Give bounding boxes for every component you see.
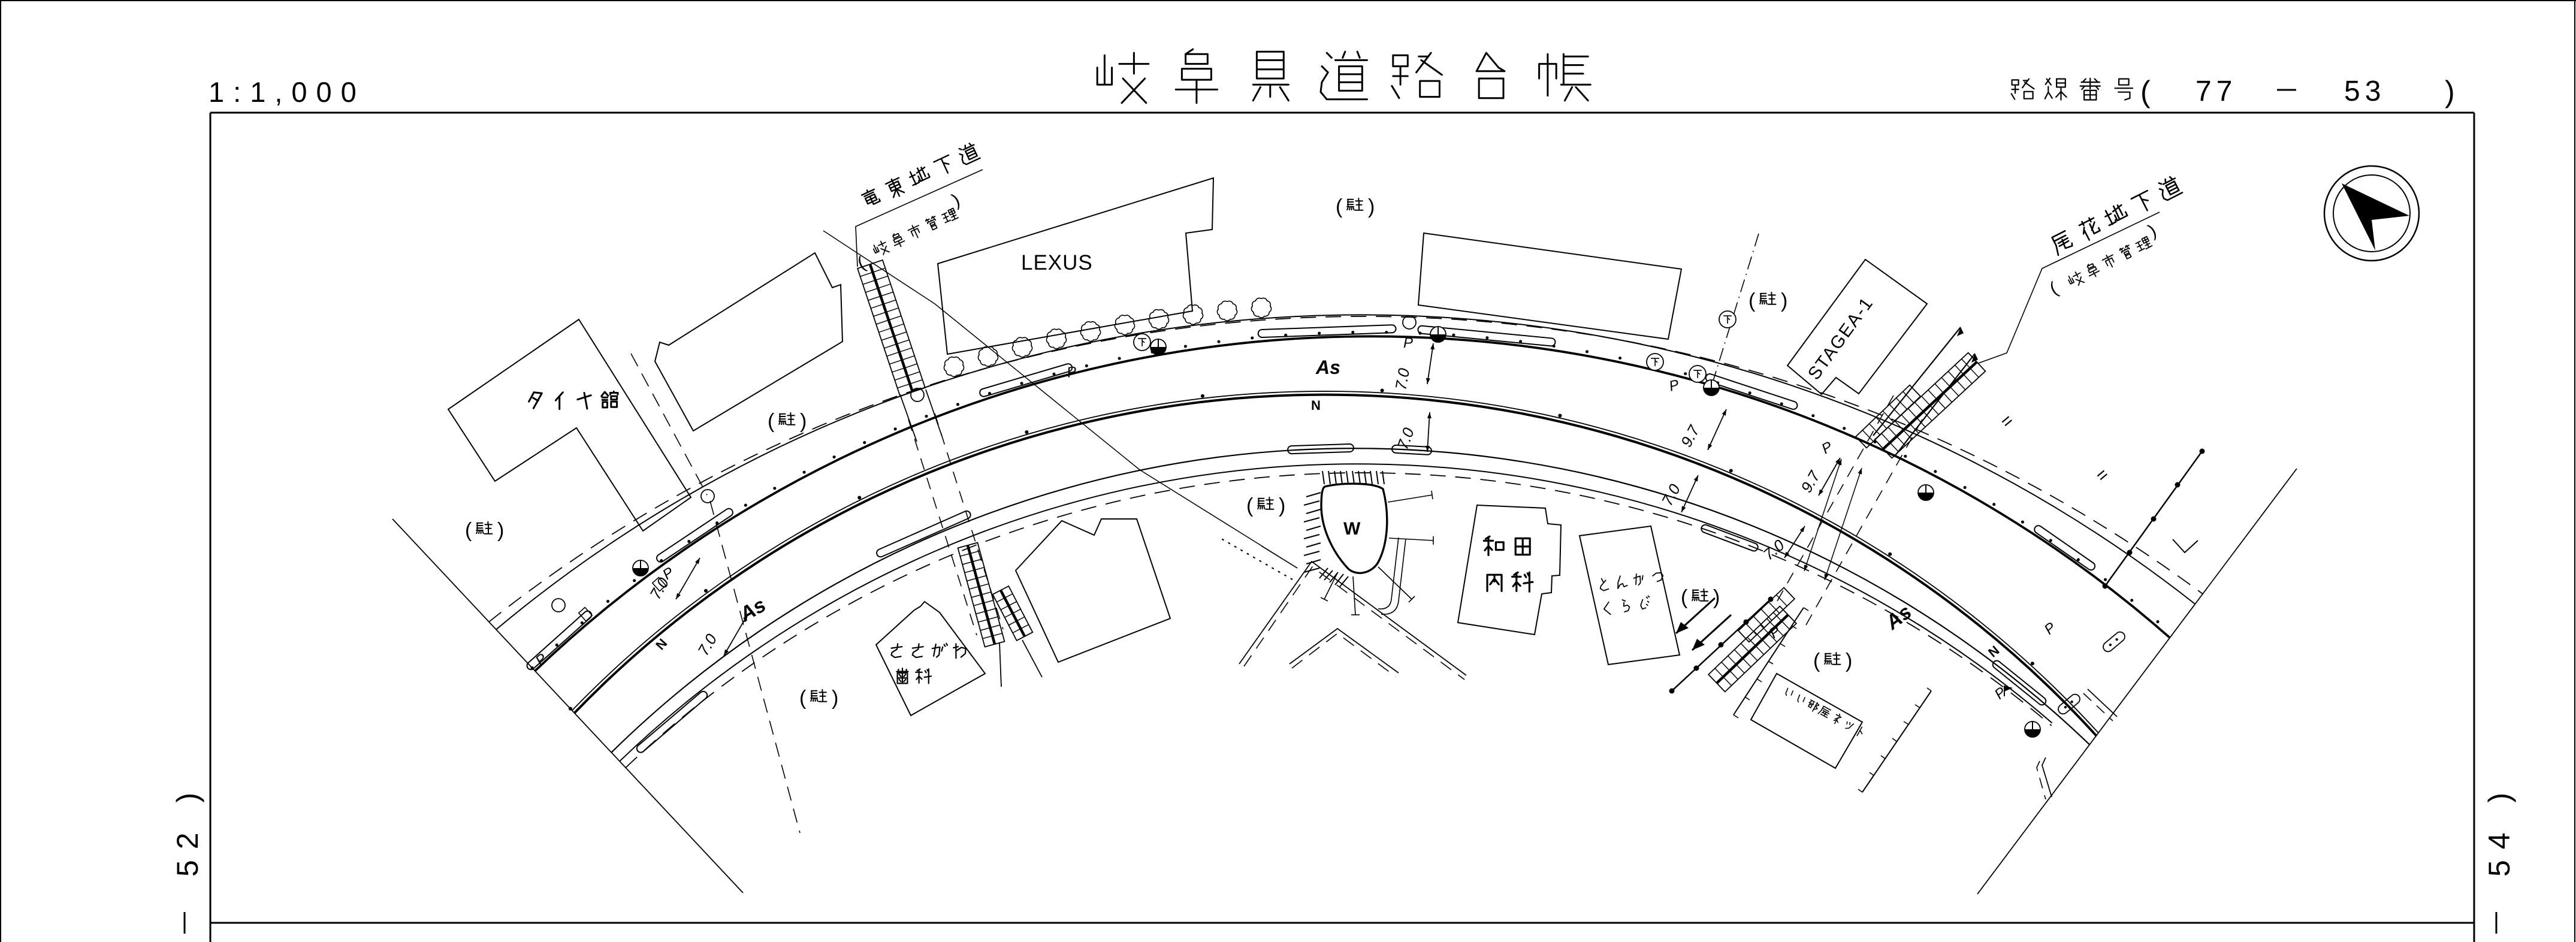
svg-text:7.0: 7.0 (1391, 367, 1413, 391)
svg-text:): ) (800, 410, 807, 433)
svg-text:): ) (1781, 289, 1787, 312)
svg-text:(: ( (465, 519, 472, 542)
svg-text:): ) (2445, 75, 2455, 108)
svg-text:1:1,000: 1:1,000 (209, 76, 366, 108)
svg-text:(: ( (1748, 289, 1756, 312)
svg-text:P: P (1403, 335, 1413, 351)
svg-text:): ) (832, 687, 838, 709)
svg-text:52 ): 52 ) (171, 782, 204, 877)
svg-text:As: As (1315, 357, 1340, 378)
svg-text:(: ( (1246, 494, 1254, 517)
svg-text:): ) (1279, 494, 1285, 517)
svg-text:N: N (1311, 398, 1321, 413)
svg-text:): ) (1368, 195, 1375, 218)
svg-text:LEXUS: LEXUS (1021, 251, 1093, 274)
svg-text:(: ( (1681, 586, 1688, 609)
svg-text:(: ( (1336, 195, 1343, 218)
svg-text:W: W (1343, 519, 1361, 539)
svg-text:(: ( (2140, 75, 2151, 108)
svg-text:): ) (497, 519, 504, 542)
svg-text:53: 53 (2344, 76, 2385, 107)
svg-text:77: 77 (2196, 76, 2237, 107)
svg-text:): ) (1713, 586, 1720, 609)
svg-text:(: ( (1813, 650, 1820, 672)
svg-text:54 ): 54 ) (2483, 782, 2516, 877)
svg-text:(: ( (799, 687, 807, 709)
svg-text:(: ( (768, 410, 775, 433)
svg-text:): ) (1846, 650, 1852, 672)
